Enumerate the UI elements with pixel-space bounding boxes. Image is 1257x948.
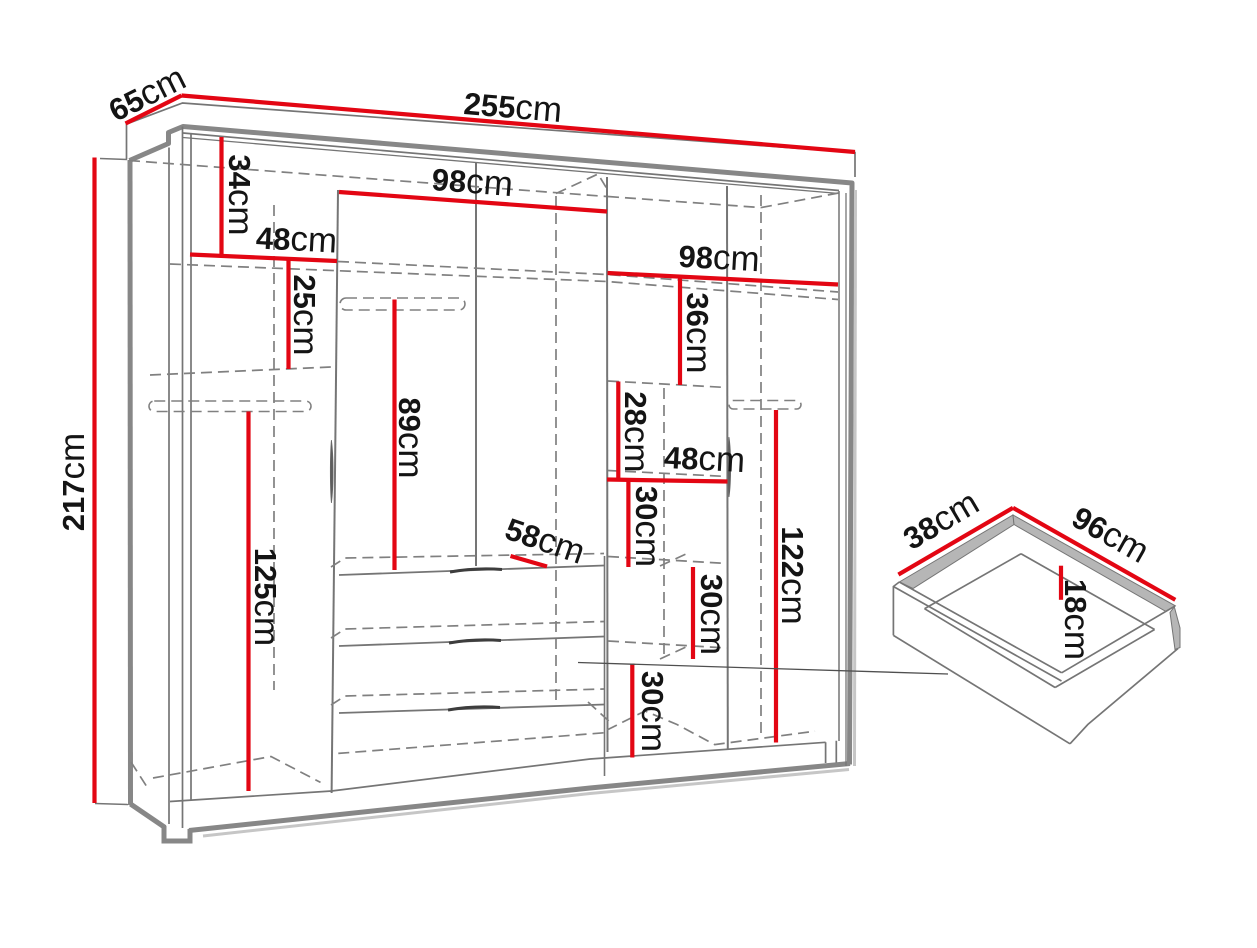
svg-text:30cm: 30cm bbox=[693, 574, 732, 655]
svg-text:36cm: 36cm bbox=[679, 292, 718, 373]
svg-text:89cm: 89cm bbox=[391, 397, 430, 478]
svg-text:25cm: 25cm bbox=[286, 274, 325, 355]
svg-text:18cm: 18cm bbox=[1057, 579, 1096, 660]
svg-text:48cm: 48cm bbox=[255, 217, 338, 260]
svg-text:98cm: 98cm bbox=[430, 159, 514, 204]
svg-text:34cm: 34cm bbox=[221, 154, 260, 235]
svg-text:125cm: 125cm bbox=[247, 548, 286, 646]
svg-text:217cm: 217cm bbox=[53, 433, 92, 531]
svg-text:30cm: 30cm bbox=[628, 486, 667, 567]
svg-text:28cm: 28cm bbox=[617, 391, 656, 472]
svg-text:30cm: 30cm bbox=[634, 671, 673, 752]
svg-text:98cm: 98cm bbox=[678, 236, 761, 279]
svg-text:122cm: 122cm bbox=[774, 526, 813, 624]
svg-text:48cm: 48cm bbox=[663, 437, 746, 480]
